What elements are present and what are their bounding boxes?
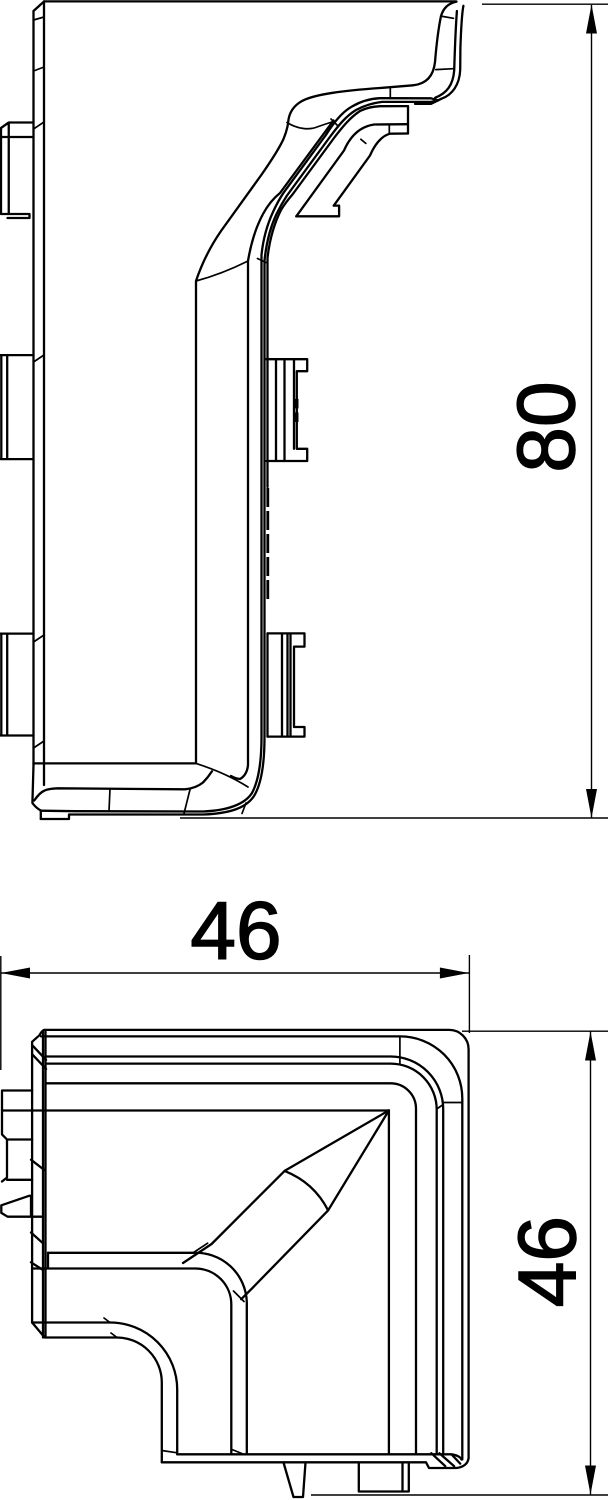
svg-text:46: 46: [190, 886, 281, 977]
svg-text:46: 46: [502, 1216, 593, 1307]
svg-text:80: 80: [501, 381, 592, 472]
